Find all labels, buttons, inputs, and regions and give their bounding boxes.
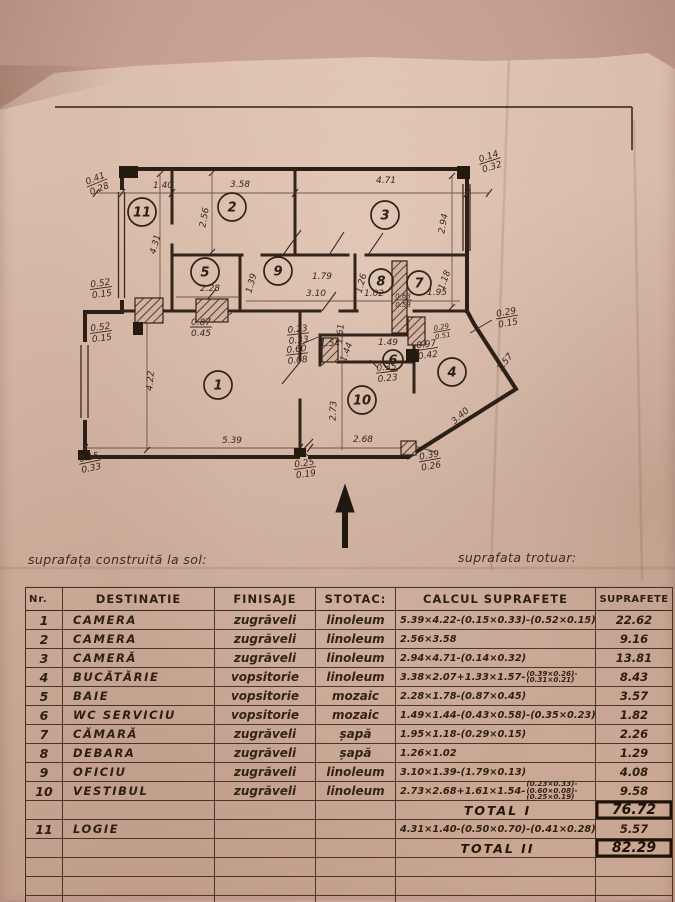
dimension-label: 0.230.33	[286, 324, 310, 347]
dimension-label: 1.02	[364, 289, 384, 299]
cell-nr: 2	[25, 630, 63, 649]
svg-text:4.31: 4.31	[149, 234, 164, 256]
cell-finisaje: zugrăveli	[215, 763, 316, 782]
svg-text:0.87: 0.87	[191, 318, 211, 328]
calc-correction-stack: (0.39×0.26)-(0.31×0.21)	[526, 671, 577, 684]
cell-destinatie	[63, 858, 215, 877]
cell-nr: 8	[25, 744, 63, 763]
svg-text:2.28: 2.28	[200, 284, 220, 294]
cell-calcul: 1.49×1.44-(0.43×0.58)-(0.35×0.23)	[396, 706, 596, 725]
svg-text:0.51: 0.51	[434, 330, 451, 342]
cell-finisaje	[215, 858, 316, 877]
cell-stotac	[316, 896, 396, 902]
svg-text:0.23: 0.23	[377, 373, 398, 385]
cell-suprafete: 4.08	[596, 763, 673, 782]
cell-calcul: 2.56×3.58	[396, 630, 596, 649]
cell-stotac	[316, 839, 396, 858]
table-row: 3CAMERĂzugrăvelilinoleum2.94×4.71-(0.14×…	[25, 649, 673, 668]
cell-nr: 3	[25, 649, 63, 668]
dimension-label: 0.520.15	[89, 322, 114, 346]
surface-table: Nr. DESTINATIE FINISAJE STOTAC: CALCUL S…	[25, 585, 673, 902]
cell-calcul: 2.28×1.78-(0.87×0.45)	[396, 687, 596, 706]
cell-finisaje	[215, 801, 316, 820]
cell-nr	[25, 858, 63, 877]
empty-row	[25, 858, 673, 877]
header-destinatie: DESTINATIE	[63, 587, 215, 611]
svg-text:7: 7	[414, 277, 424, 292]
dimension-label: 1.57	[495, 352, 515, 374]
dimension-label: 0.350.23	[375, 362, 399, 385]
header-calcul: CALCUL SUPRAFETE	[396, 587, 596, 611]
cell-suprafete: 1.82	[596, 706, 673, 725]
cell-calcul: 4.31×1.40-(0.50×0.70)-(0.41×0.28)	[396, 820, 596, 839]
cell-suprafete: 9.16	[596, 630, 673, 649]
cell-calcul: TOTAL II	[396, 839, 596, 858]
cell-calcul: 5.39×4.22-(0.15×0.33)-(0.52×0.15)	[396, 611, 596, 630]
cell-suprafete	[596, 896, 673, 902]
svg-text:1.57: 1.57	[495, 352, 515, 374]
dimension-label: 0.250.19	[293, 458, 318, 482]
cell-finisaje: zugrăveli	[215, 611, 316, 630]
room-circle-11: 11	[128, 198, 156, 226]
table-header-row: Nr. DESTINATIE FINISAJE STOTAC: CALCUL S…	[25, 587, 673, 611]
cell-stotac: șapă	[316, 744, 396, 763]
cell-suprafete	[596, 877, 673, 896]
svg-text:1.79: 1.79	[312, 272, 332, 282]
cell-destinatie: DEBARA	[63, 744, 215, 763]
table-row: 1CAMERAzugrăvelilinoleum5.39×4.22-(0.15×…	[25, 611, 673, 630]
cell-stotac: linoleum	[316, 763, 396, 782]
cell-suprafete: 5.57	[596, 820, 673, 839]
svg-text:0.58: 0.58	[395, 300, 411, 309]
cell-finisaje: vopsitorie	[215, 668, 316, 687]
svg-text:1.49: 1.49	[378, 338, 398, 348]
cell-calcul: 2.94×4.71-(0.14×0.32)	[396, 649, 596, 668]
svg-text:10: 10	[353, 394, 371, 409]
caption-built-area: suprafața construită la sol:	[28, 552, 207, 567]
cell-nr: 5	[25, 687, 63, 706]
header-stotac: STOTAC:	[316, 587, 396, 611]
cell-calcul: 3.38×2.07+1.33×1.57-(0.39×0.26)-(0.31×0.…	[396, 668, 596, 687]
cell-calcul: 2.73×2.68+1.61×1.54-(0.23×0.33)-(0.60×0.…	[396, 782, 596, 801]
cell-destinatie: VESTIBUL	[63, 782, 215, 801]
cell-finisaje	[215, 877, 316, 896]
cell-calcul: 1.26×1.02	[396, 744, 596, 763]
svg-text:3.10: 3.10	[306, 289, 326, 299]
cell-suprafete: 8.43	[596, 668, 673, 687]
svg-text:5.39: 5.39	[222, 436, 242, 446]
cell-destinatie: LOGIE	[63, 820, 215, 839]
cell-finisaje	[215, 839, 316, 858]
cell-stotac: linoleum	[316, 611, 396, 630]
cell-nr: 10	[25, 782, 63, 801]
cell-finisaje	[215, 896, 316, 902]
table-row: 6WC SERVICIUvopsitoriemozaic1.49×1.44-(0…	[25, 706, 673, 725]
cell-destinatie: CĂMARĂ	[63, 725, 215, 744]
svg-text:1.02: 1.02	[364, 289, 384, 299]
caption-sidewalk-area: suprafata trotuar:	[458, 550, 577, 565]
svg-text:0.15: 0.15	[91, 333, 113, 346]
dimension-label: 5.39	[222, 436, 242, 446]
svg-text:1.95: 1.95	[427, 288, 447, 298]
svg-text:0.19: 0.19	[295, 469, 317, 482]
dimension-label: 1.79	[312, 272, 332, 282]
table-row: 5BAIEvopsitoriemozaic2.28×1.78-(0.87×0.4…	[25, 687, 673, 706]
cell-finisaje: zugrăveli	[215, 782, 316, 801]
cell-destinatie: OFICIU	[63, 763, 215, 782]
table-row: 4BUCĂTĂRIEvopsitorielinoleum3.38×2.07+1.…	[25, 668, 673, 687]
room-circle-3: 3	[371, 201, 399, 229]
sheet-frame-line	[55, 107, 632, 150]
svg-text:0.15: 0.15	[497, 317, 519, 330]
cell-calcul	[396, 896, 596, 902]
dimension-label: 4.71	[376, 176, 396, 186]
total-row: TOTAL I76.72	[25, 801, 673, 820]
cell-stotac: linoleum	[316, 668, 396, 687]
room-circle-1: 1	[204, 371, 232, 399]
cell-calcul	[396, 877, 596, 896]
header-suprafete: SUPRAFETE	[596, 587, 673, 611]
svg-text:0.42: 0.42	[417, 350, 439, 363]
cell-suprafete	[596, 858, 673, 877]
dimension-label: 2.56	[198, 207, 211, 229]
cell-stotac: linoleum	[316, 630, 396, 649]
dimension-label: 1.49	[378, 338, 398, 348]
cell-calcul: TOTAL I	[396, 801, 596, 820]
svg-text:1.39: 1.39	[245, 272, 260, 294]
cell-stotac: linoleum	[316, 782, 396, 801]
dimension-label: 0.600.08	[285, 344, 309, 367]
cell-stotac: mozaic	[316, 687, 396, 706]
cell-finisaje: vopsitorie	[215, 687, 316, 706]
svg-text:2.73: 2.73	[328, 400, 339, 421]
svg-text:9: 9	[273, 265, 282, 280]
cell-suprafete: 22.62	[596, 611, 673, 630]
cell-nr: 11	[25, 820, 63, 839]
cell-stotac: linoleum	[316, 649, 396, 668]
dimension-label: 0.390.26	[418, 449, 443, 474]
svg-text:2.68: 2.68	[353, 435, 373, 445]
svg-text:4.22: 4.22	[145, 370, 157, 391]
cell-nr: 6	[25, 706, 63, 725]
svg-text:5: 5	[200, 266, 209, 281]
cell-destinatie	[63, 877, 215, 896]
svg-text:1.40: 1.40	[153, 181, 173, 191]
dimension-label: 2.94	[437, 213, 450, 235]
table-row: 10VESTIBULzugrăvelilinoleum2.73×2.68+1.6…	[25, 782, 673, 801]
table-row: 2CAMERAzugrăvelilinoleum2.56×3.589.16	[25, 630, 673, 649]
cell-destinatie: CAMERĂ	[63, 649, 215, 668]
dimension-label: 0.520.15	[89, 278, 114, 302]
header-nr: Nr.	[25, 587, 63, 611]
cell-suprafete: 2.26	[596, 725, 673, 744]
cell-nr	[25, 896, 63, 902]
svg-text:0.15: 0.15	[91, 289, 113, 302]
dimension-label: 2.73	[328, 400, 339, 421]
cell-suprafete: 13.81	[596, 649, 673, 668]
cell-stotac	[316, 801, 396, 820]
room-circle-4: 4	[438, 358, 466, 386]
table-row: 7CĂMARĂzugrăvelișapă1.95×1.18-(0.29×0.15…	[25, 725, 673, 744]
cell-destinatie	[63, 896, 215, 902]
cell-destinatie	[63, 801, 215, 820]
cell-suprafete: 76.72	[596, 801, 673, 820]
cell-destinatie: CAMERA	[63, 630, 215, 649]
cell-nr: 4	[25, 668, 63, 687]
svg-text:4: 4	[446, 366, 456, 381]
cell-suprafete: 9.58	[596, 782, 673, 801]
svg-text:3.58: 3.58	[230, 180, 250, 190]
svg-text:0.08: 0.08	[287, 355, 308, 367]
calc-correction-stack: (0.23×0.33)-(0.60×0.08)-(0.25×0.19)	[526, 781, 577, 800]
cell-calcul	[396, 858, 596, 877]
dimension-label: 0.140.32	[477, 149, 504, 176]
cell-destinatie: BAIE	[63, 687, 215, 706]
svg-text:0.26: 0.26	[420, 460, 442, 473]
table-row: 11LOGIE4.31×1.40-(0.50×0.70)-(0.41×0.28)…	[25, 820, 673, 839]
empty-row	[25, 877, 673, 896]
photo-of-floor-plan-document: { "page": { "caption_left": "suprafața c…	[0, 0, 675, 900]
dimension-label: 0.630.58	[394, 291, 411, 309]
empty-row	[25, 896, 673, 902]
cell-calcul: 1.95×1.18-(0.29×0.15)	[396, 725, 596, 744]
svg-text:4.71: 4.71	[376, 176, 396, 186]
dimension-label: 3.10	[306, 289, 326, 299]
cell-nr	[25, 839, 63, 858]
dimension-label: 0.410.28	[83, 171, 111, 199]
dimension-label: 0.870.45	[190, 318, 212, 339]
dimension-label: 2.28	[200, 284, 220, 294]
total-label: TOTAL II	[400, 841, 595, 856]
dimension-label: 3.58	[230, 180, 250, 190]
svg-text:0.45: 0.45	[191, 329, 211, 339]
cell-destinatie: WC SERVICIU	[63, 706, 215, 725]
dimension-label: 1.40	[153, 181, 173, 191]
dimension-label: 4.31	[149, 234, 164, 256]
svg-text:2.56: 2.56	[198, 207, 211, 229]
cell-nr	[25, 801, 63, 820]
cell-nr: 1	[25, 611, 63, 630]
svg-text:2.94: 2.94	[437, 213, 450, 235]
cell-nr	[25, 877, 63, 896]
dimension-label: 0.970.42	[415, 339, 440, 363]
cell-suprafete: 82.29	[596, 839, 673, 858]
cell-destinatie: CAMERA	[63, 611, 215, 630]
total-row: TOTAL II82.29	[25, 839, 673, 858]
dimension-label: 0.150.33	[77, 451, 103, 476]
svg-text:0.63: 0.63	[395, 291, 411, 300]
cell-finisaje: vopsitorie	[215, 706, 316, 725]
cell-finisaje: zugrăveli	[215, 725, 316, 744]
svg-text:2: 2	[227, 201, 236, 216]
room-circle-9: 9	[264, 257, 292, 285]
cell-suprafete: 3.57	[596, 687, 673, 706]
header-finisaje: FINISAJE	[215, 587, 316, 611]
dimension-label: 1.95	[427, 288, 447, 298]
dimension-label: 0.290.15	[495, 306, 520, 331]
cell-finisaje: zugrăveli	[215, 649, 316, 668]
cell-finisaje	[215, 820, 316, 839]
svg-text:11: 11	[133, 206, 151, 221]
table-row: 8DEBARAzugrăvelișapă1.26×1.021.29	[25, 744, 673, 763]
svg-text:1.54: 1.54	[320, 339, 340, 349]
cell-stotac: mozaic	[316, 706, 396, 725]
north-arrow-icon	[336, 485, 354, 548]
cell-destinatie	[63, 839, 215, 858]
cell-stotac	[316, 877, 396, 896]
dimension-label: 1.54	[320, 339, 340, 349]
cell-stotac	[316, 858, 396, 877]
cell-stotac: șapă	[316, 725, 396, 744]
cell-destinatie: BUCĂTĂRIE	[63, 668, 215, 687]
cell-suprafete: 1.29	[596, 744, 673, 763]
table-body: 1CAMERAzugrăvelilinoleum5.39×4.22-(0.15×…	[25, 611, 673, 902]
room-circle-2: 2	[218, 193, 246, 221]
total-label: TOTAL I	[400, 803, 595, 818]
dimension-label: 2.68	[353, 435, 373, 445]
cell-nr: 9	[25, 763, 63, 782]
svg-text:8: 8	[376, 275, 385, 290]
dimension-label: 1.39	[245, 272, 260, 294]
svg-text:1: 1	[213, 379, 222, 394]
room-circle-10: 10	[348, 386, 376, 414]
svg-text:3: 3	[380, 209, 389, 224]
room-circle-5: 5	[191, 258, 219, 286]
cell-finisaje: zugrăveli	[215, 744, 316, 763]
cell-nr: 7	[25, 725, 63, 744]
dimension-label: 4.22	[145, 370, 157, 391]
cell-finisaje: zugrăveli	[215, 630, 316, 649]
cell-stotac	[316, 820, 396, 839]
